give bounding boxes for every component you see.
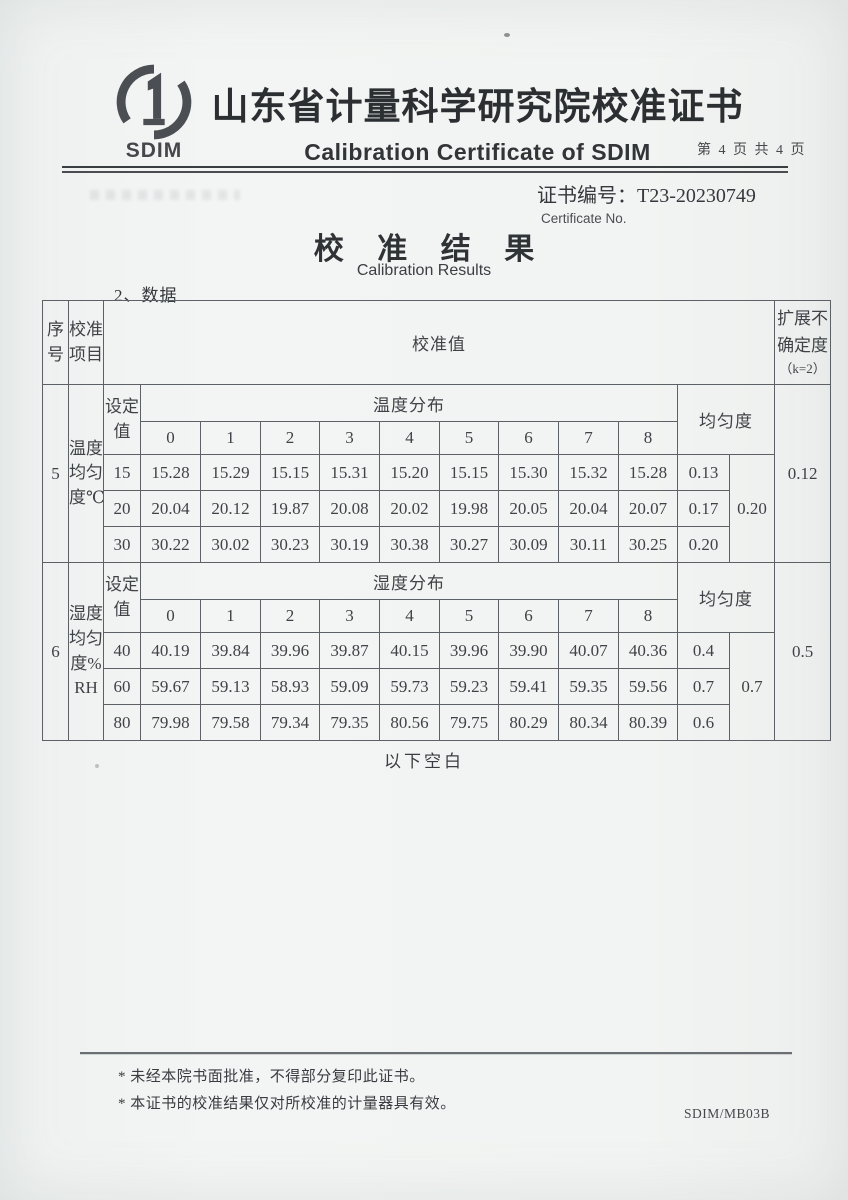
scan-ghost-artifact [90, 190, 240, 200]
value-cell: 30.19 [320, 527, 380, 563]
hum-row-40: 40 40.19 39.84 39.96 39.87 40.15 39.96 3… [43, 633, 831, 669]
index-cell: 1 [201, 600, 261, 633]
value-cell: 30.27 [440, 527, 499, 563]
sdim-logo: SDIM [108, 62, 200, 163]
index-cell: 2 [261, 600, 320, 633]
header-divider [62, 166, 788, 173]
uncertainty-label: 扩展不确定度 [775, 305, 830, 359]
scan-speck [504, 33, 510, 37]
value-cell: 40.36 [619, 633, 678, 669]
index-cell: 7 [559, 600, 619, 633]
value-cell: 20.04 [141, 491, 201, 527]
value-cell: 80.39 [619, 705, 678, 741]
value-cell: 20.04 [559, 491, 619, 527]
footnote-2: * 本证书的校准结果仅对所校准的计量器具有效。 [118, 1091, 456, 1118]
hum-distribution-header: 湿度分布 [141, 563, 678, 600]
index-cell: 7 [559, 422, 619, 455]
value-cell: 19.98 [440, 491, 499, 527]
value-cell: 15.28 [141, 455, 201, 491]
institute-title-en: Calibration Certificate of SDIM [205, 139, 750, 166]
setpoint-cell: 60 [104, 669, 141, 705]
value-cell: 30.22 [141, 527, 201, 563]
item-cell-hum: 湿度均匀度%RH [69, 563, 104, 741]
index-cell: 4 [380, 422, 440, 455]
value-cell: 40.19 [141, 633, 201, 669]
value-cell: 79.75 [440, 705, 499, 741]
value-cell: 39.96 [440, 633, 499, 669]
value-cell: 59.67 [141, 669, 201, 705]
hum-row-80: 80 79.98 79.58 79.34 79.35 80.56 79.75 8… [43, 705, 831, 741]
scan-speck [95, 764, 99, 768]
form-number: SDIM/MB03B [684, 1106, 770, 1122]
value-cell: 59.23 [440, 669, 499, 705]
index-cell: 6 [499, 422, 559, 455]
index-cell: 3 [320, 422, 380, 455]
value-cell: 20.08 [320, 491, 380, 527]
index-cell: 5 [440, 600, 499, 633]
seq-cell-temp: 5 [43, 385, 69, 563]
overall-uniformity-hum: 0.7 [730, 633, 775, 741]
value-cell: 39.84 [201, 633, 261, 669]
setpoint-header-hum: 设定值 [104, 563, 141, 633]
value-cell: 58.93 [261, 669, 320, 705]
footer-divider [80, 1052, 792, 1054]
logo-text: SDIM [108, 139, 200, 163]
col-header-uncertainty: 扩展不确定度 （k=2） [775, 301, 831, 385]
institute-title-cn: 山东省计量科学研究院校准证书 [205, 76, 750, 130]
setpoint-header-temp: 设定值 [104, 385, 141, 455]
value-cell: 15.32 [559, 455, 619, 491]
value-cell: 15.20 [380, 455, 440, 491]
below-blank-note: 以下空白 [0, 747, 848, 772]
uniformity-header-hum: 均匀度 [678, 563, 775, 633]
value-cell: 59.41 [499, 669, 559, 705]
index-cell: 8 [619, 422, 678, 455]
index-cell: 2 [261, 422, 320, 455]
setpoint-cell: 20 [104, 491, 141, 527]
setpoint-cell: 80 [104, 705, 141, 741]
setpoint-cell: 40 [104, 633, 141, 669]
index-cell: 3 [320, 600, 380, 633]
temp-row-15: 15 15.28 15.29 15.15 15.31 15.20 15.15 1… [43, 455, 831, 491]
value-cell: 15.15 [261, 455, 320, 491]
value-cell: 15.29 [201, 455, 261, 491]
value-cell: 20.05 [499, 491, 559, 527]
value-cell: 59.09 [320, 669, 380, 705]
value-cell: 19.87 [261, 491, 320, 527]
footnotes: * 未经本院书面批准，不得部分复印此证书。 * 本证书的校准结果仅对所校准的计量… [118, 1064, 456, 1118]
index-cell: 6 [499, 600, 559, 633]
value-cell: 59.73 [380, 669, 440, 705]
value-cell: 30.11 [559, 527, 619, 563]
value-cell: 30.02 [201, 527, 261, 563]
value-cell: 39.90 [499, 633, 559, 669]
index-cell: 0 [141, 600, 201, 633]
col-header-item: 校准项目 [69, 301, 104, 385]
certificate-number-line: 证书编号：T23-20230749 [537, 179, 756, 208]
uniformity-cell: 0.20 [678, 527, 730, 563]
calibration-results-table: 序号 校准项目 校准值 扩展不确定度 （k=2） 5 温度均匀度℃ 设定值 温度… [42, 300, 831, 741]
certificate-page: SDIM 山东省计量科学研究院校准证书 Calibration Certific… [0, 0, 848, 1200]
value-cell: 39.87 [320, 633, 380, 669]
value-cell: 59.56 [619, 669, 678, 705]
index-cell: 1 [201, 422, 261, 455]
certificate-number-value: T23-20230749 [637, 185, 756, 207]
index-cell: 8 [619, 600, 678, 633]
item-cell-temp: 温度均匀度℃ [69, 385, 104, 563]
value-cell: 20.07 [619, 491, 678, 527]
value-cell: 30.25 [619, 527, 678, 563]
value-cell: 30.23 [261, 527, 320, 563]
uncertainty-cell-hum: 0.5 [775, 563, 831, 741]
value-cell: 80.34 [559, 705, 619, 741]
value-cell: 59.35 [559, 669, 619, 705]
index-cell: 0 [141, 422, 201, 455]
header-titles: 山东省计量科学研究院校准证书 Calibration Certificate o… [205, 76, 750, 166]
footnote-1: * 未经本院书面批准，不得部分复印此证书。 [118, 1064, 456, 1091]
value-cell: 80.29 [499, 705, 559, 741]
temp-block-header-row: 5 温度均匀度℃ 设定值 温度分布 均匀度 0.12 [43, 385, 831, 422]
value-cell: 39.96 [261, 633, 320, 669]
index-cell: 4 [380, 600, 440, 633]
col-header-value: 校准值 [104, 301, 775, 385]
section-title-en: Calibration Results [0, 262, 848, 280]
temp-distribution-header: 温度分布 [141, 385, 678, 422]
value-cell: 59.13 [201, 669, 261, 705]
uncertainty-k-label: （k=2） [775, 359, 830, 380]
value-cell: 15.30 [499, 455, 559, 491]
value-cell: 15.15 [440, 455, 499, 491]
value-cell: 30.38 [380, 527, 440, 563]
temp-row-30: 30 30.22 30.02 30.23 30.19 30.38 30.27 3… [43, 527, 831, 563]
value-cell: 15.31 [320, 455, 380, 491]
overall-uniformity-temp: 0.20 [730, 455, 775, 563]
setpoint-cell: 30 [104, 527, 141, 563]
uniformity-cell: 0.4 [678, 633, 730, 669]
hum-block-header-row: 6 湿度均匀度%RH 设定值 湿度分布 均匀度 0.5 [43, 563, 831, 600]
setpoint-cell: 15 [104, 455, 141, 491]
value-cell: 79.98 [141, 705, 201, 741]
value-cell: 80.56 [380, 705, 440, 741]
value-cell: 20.02 [380, 491, 440, 527]
uniformity-cell: 0.13 [678, 455, 730, 491]
sdim-logo-icon [112, 62, 196, 142]
value-cell: 40.15 [380, 633, 440, 669]
value-cell: 40.07 [559, 633, 619, 669]
col-header-seq: 序号 [43, 301, 69, 385]
seq-cell-hum: 6 [43, 563, 69, 741]
page-number: 第 4 页 共 4 页 [697, 139, 807, 159]
hum-row-60: 60 59.67 59.13 58.93 59.09 59.73 59.23 5… [43, 669, 831, 705]
value-cell: 79.34 [261, 705, 320, 741]
value-cell: 30.09 [499, 527, 559, 563]
uncertainty-cell-temp: 0.12 [775, 385, 831, 563]
temp-row-20: 20 20.04 20.12 19.87 20.08 20.02 19.98 2… [43, 491, 831, 527]
value-cell: 79.35 [320, 705, 380, 741]
certificate-number-label: 证书编号： [537, 185, 637, 207]
value-cell: 79.58 [201, 705, 261, 741]
index-cell: 5 [440, 422, 499, 455]
uniformity-header-temp: 均匀度 [678, 385, 775, 455]
uniformity-cell: 0.17 [678, 491, 730, 527]
uniformity-cell: 0.6 [678, 705, 730, 741]
value-cell: 20.12 [201, 491, 261, 527]
uniformity-cell: 0.7 [678, 669, 730, 705]
value-cell: 15.28 [619, 455, 678, 491]
